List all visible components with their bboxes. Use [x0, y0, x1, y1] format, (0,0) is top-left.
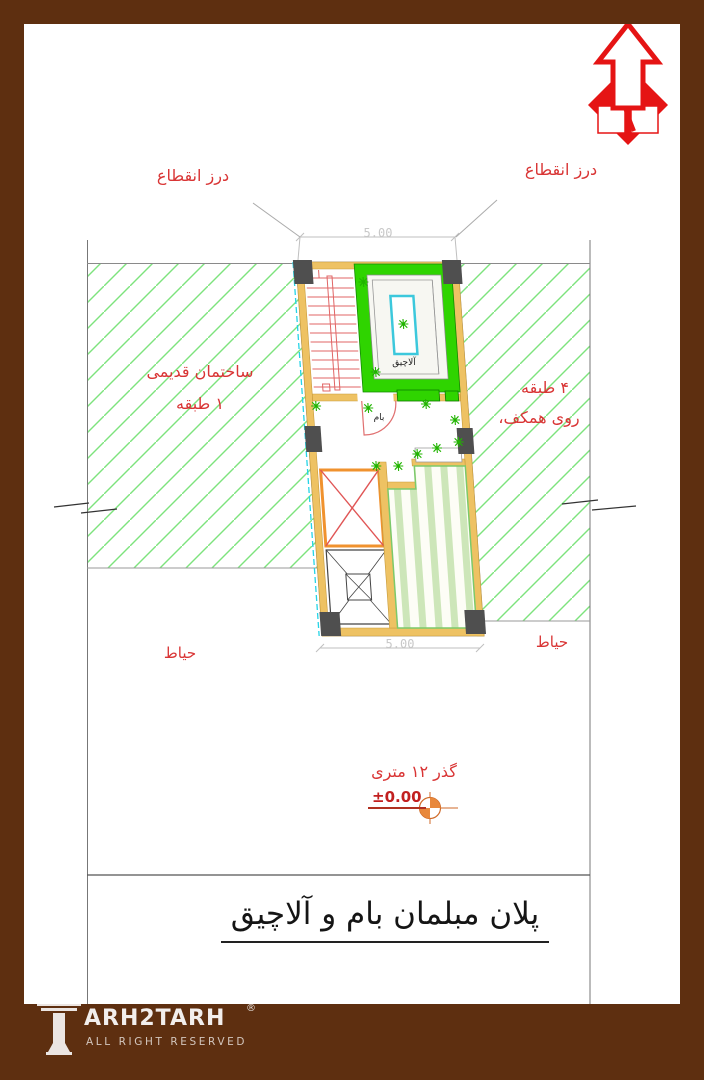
drawing-title-text: پلان مبلمان بام و آلاچیق: [221, 896, 550, 943]
yard-label-left: حیاط: [135, 644, 225, 662]
building-plan: [293, 260, 487, 636]
blueprint-page: درز انقطاع درز انقطاع ساختمان قدیمی ۱ طب…: [0, 0, 704, 1080]
expansion-joint-label-right: درز انقطاع: [486, 160, 636, 179]
gazebo-room-label: آلاچیق: [372, 358, 436, 368]
dimension-top: 5.00: [338, 226, 418, 240]
old-building-label-line1: ساختمان قدیمی: [105, 362, 295, 381]
old-building-label-line2: ۱ طبقه: [105, 394, 295, 413]
level-label: ±0.00: [368, 788, 426, 809]
drawing-title: پلان مبلمان بام و آلاچیق: [160, 896, 610, 943]
watermark-column-icon: [36, 1000, 82, 1056]
expansion-joint-label-left: درز انقطاع: [118, 166, 268, 185]
dimension-bottom: 5.00: [360, 637, 440, 651]
roof-room-label: بام: [356, 413, 402, 423]
passage-label: گذر ۱۲ متری: [352, 762, 476, 781]
skylight-opening: [321, 470, 384, 546]
north-arrow-icon: [588, 24, 668, 145]
yard-label-right: حیاط: [512, 633, 592, 651]
watermark-registered-icon: ®: [246, 1003, 256, 1014]
watermark-brand: ARH2TARH: [84, 1006, 225, 1031]
adjacent-building-label-line2: روی همکف،: [478, 408, 600, 427]
old-building-hatch: [87, 264, 322, 568]
adjacent-building-label-line1: ۴ طبقه: [490, 378, 600, 397]
watermark-tagline: ALL RIGHT RESERVED: [86, 1036, 247, 1048]
